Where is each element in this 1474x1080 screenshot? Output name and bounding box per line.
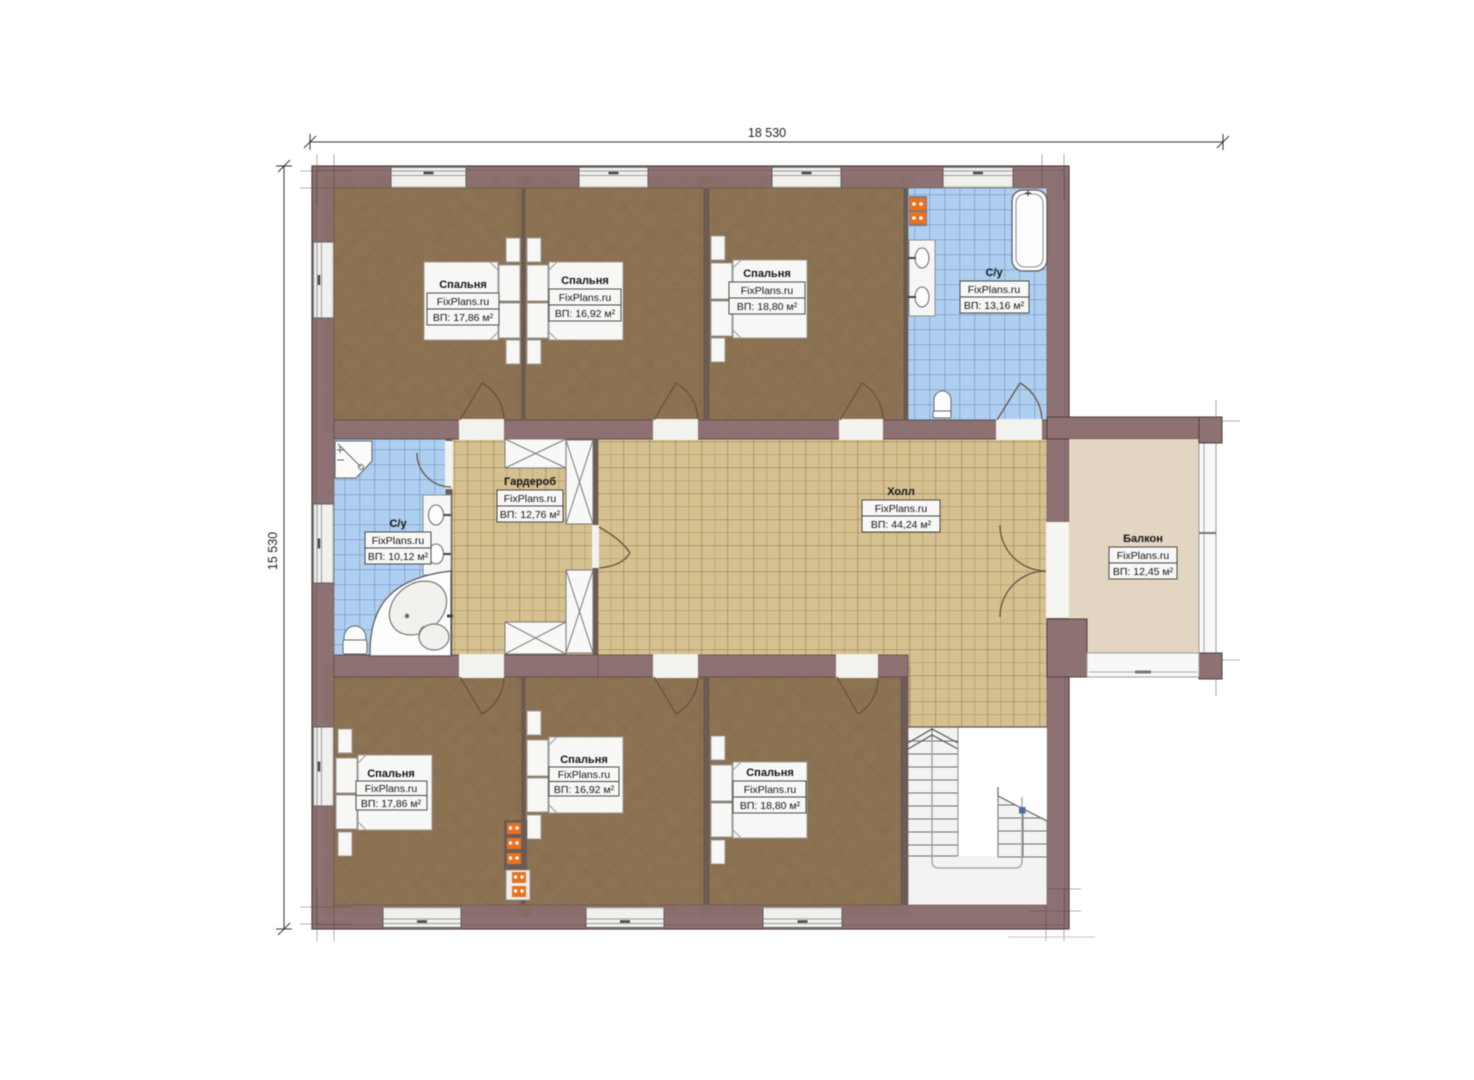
svg-text:Холл: Холл: [887, 486, 915, 498]
svg-text:ВП: 44,24 м²: ВП: 44,24 м²: [871, 519, 932, 531]
svg-text:Спальня: Спальня: [743, 268, 791, 280]
svg-text:Спальня: Спальня: [746, 767, 794, 779]
svg-text:С/у: С/у: [389, 518, 407, 530]
svg-text:FixPlans.ru: FixPlans.ru: [741, 285, 794, 297]
svg-text:FixPlans.ru: FixPlans.ru: [744, 784, 797, 796]
svg-text:Балкон: Балкон: [1123, 533, 1163, 545]
svg-text:ВП: 16,92 м²: ВП: 16,92 м²: [555, 308, 616, 320]
svg-text:FixPlans.ru: FixPlans.ru: [1117, 550, 1170, 562]
svg-text:ВП: 13,16 м²: ВП: 13,16 м²: [964, 300, 1025, 312]
svg-text:ВП: 12,76 м²: ВП: 12,76 м²: [500, 509, 561, 521]
svg-text:Гардероб: Гардероб: [504, 476, 556, 488]
svg-text:FixPlans.ru: FixPlans.ru: [504, 493, 557, 505]
svg-text:FixPlans.ru: FixPlans.ru: [559, 292, 612, 304]
svg-text:ВП: 18,80 м²: ВП: 18,80 м²: [737, 301, 798, 313]
svg-text:С/у: С/у: [985, 267, 1003, 279]
svg-text:ВП: 17,86 м²: ВП: 17,86 м²: [361, 798, 422, 810]
svg-text:Спальня: Спальня: [439, 279, 487, 291]
svg-text:ВП: 10,12 м²: ВП: 10,12 м²: [368, 551, 429, 563]
svg-text:ВП: 12,45 м²: ВП: 12,45 м²: [1113, 566, 1174, 578]
svg-text:18 530: 18 530: [748, 126, 786, 140]
svg-text:Спальня: Спальня: [367, 768, 415, 780]
svg-text:ВП: 17,86 м²: ВП: 17,86 м²: [433, 312, 494, 324]
svg-text:FixPlans.ru: FixPlans.ru: [875, 503, 928, 515]
svg-text:FixPlans.ru: FixPlans.ru: [372, 535, 425, 547]
svg-text:Спальня: Спальня: [560, 754, 608, 766]
svg-text:ВП: 16,92 м²: ВП: 16,92 м²: [554, 784, 615, 796]
svg-text:ВП: 18,80 м²: ВП: 18,80 м²: [740, 800, 801, 812]
svg-text:FixPlans.ru: FixPlans.ru: [437, 296, 490, 308]
svg-text:FixPlans.ru: FixPlans.ru: [365, 783, 418, 795]
svg-text:FixPlans.ru: FixPlans.ru: [558, 769, 611, 781]
svg-text:FixPlans.ru: FixPlans.ru: [968, 284, 1021, 296]
svg-text:Спальня: Спальня: [561, 275, 609, 287]
svg-text:15 530: 15 530: [266, 532, 280, 570]
